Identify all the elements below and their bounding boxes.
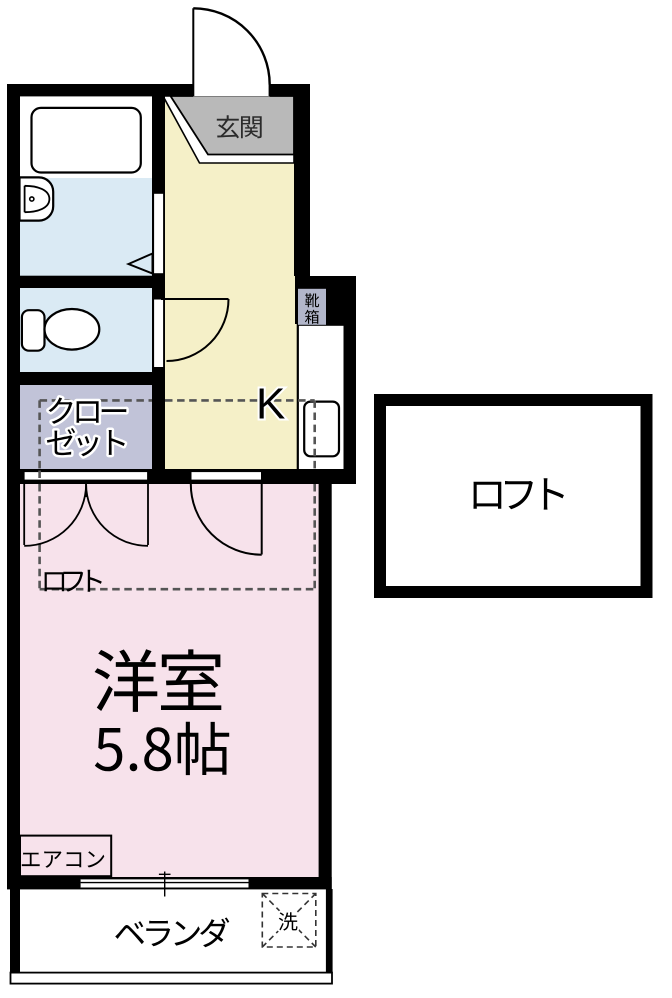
svg-text:K: K bbox=[256, 380, 285, 429]
